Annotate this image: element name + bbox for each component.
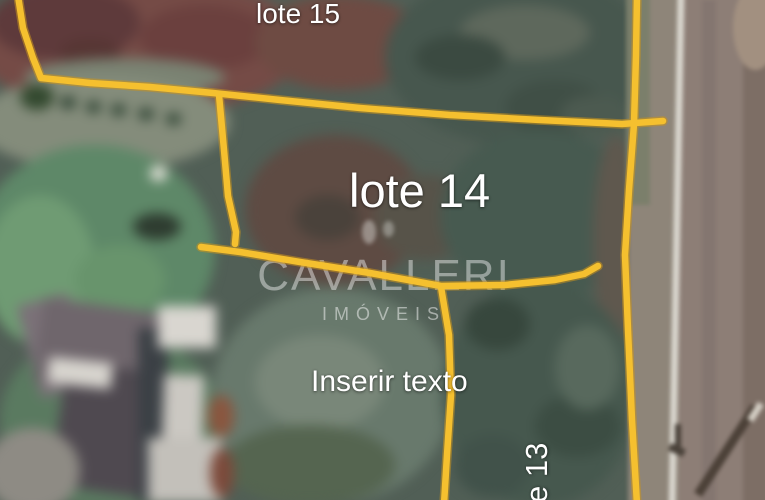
aerial-lot-photo: CAVALLERI IMÓVEIS lote 15 lote 14 Inseri…: [0, 0, 765, 500]
boundary-edge-group: [18, 0, 663, 500]
boundary-lot15: [18, 0, 663, 124]
boundary-lot14-bottom: [201, 247, 598, 286]
label-lote-14: lote 14: [349, 167, 490, 214]
label-lote-15: lote 15: [256, 0, 340, 28]
boundary-main-group: [18, 0, 663, 500]
label-inserir-texto: Inserir texto: [311, 367, 468, 397]
label-lote-13: e 13: [521, 443, 552, 500]
lot-boundaries: [0, 0, 765, 500]
